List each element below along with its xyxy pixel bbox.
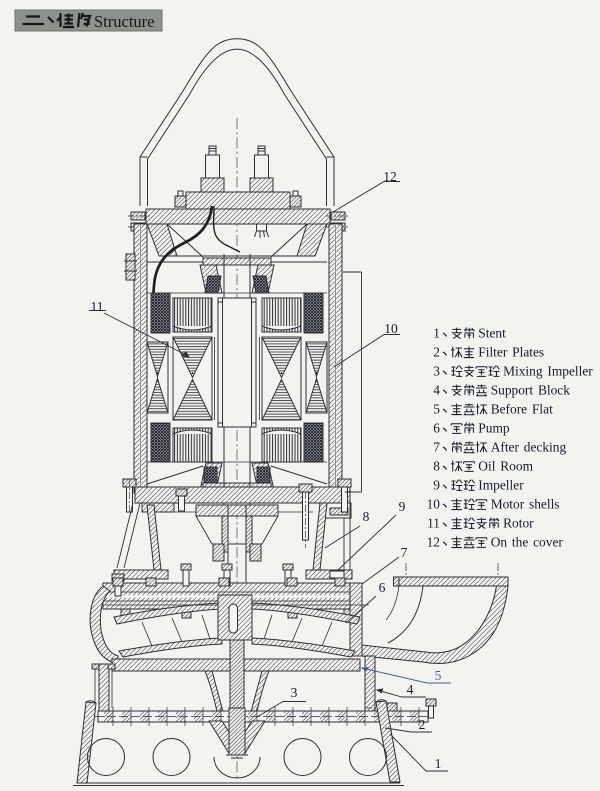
svg-text:12: 12 [383, 169, 397, 184]
svg-text:8: 8 [363, 509, 370, 524]
svg-text:7: 7 [433, 440, 440, 455]
svg-text:11: 11 [91, 299, 104, 314]
svg-text:6: 6 [379, 580, 386, 595]
svg-text:6: 6 [433, 421, 440, 436]
svg-text:Pump: Pump [478, 421, 510, 436]
svg-text:Impeller: Impeller [478, 478, 524, 493]
svg-text:5: 5 [435, 668, 442, 683]
svg-text:4: 4 [433, 383, 440, 398]
svg-text:1: 1 [433, 326, 440, 341]
svg-text:Before Flat: Before Flat [491, 402, 553, 417]
svg-text:On the cover: On the cover [491, 535, 564, 550]
svg-text:3: 3 [433, 364, 440, 379]
svg-text:5: 5 [433, 402, 440, 417]
svg-text:11: 11 [427, 516, 440, 531]
svg-text:Stent: Stent [478, 326, 506, 341]
svg-text:7: 7 [401, 545, 408, 560]
svg-text:10: 10 [427, 497, 441, 512]
svg-text:Motor shells: Motor shells [491, 497, 560, 512]
svg-text:After decking: After decking [491, 440, 567, 455]
svg-text:Filter Plates: Filter Plates [478, 345, 544, 360]
svg-text:Structure: Structure [94, 12, 154, 31]
svg-text:8: 8 [433, 459, 440, 474]
svg-text:Support Block: Support Block [491, 383, 571, 398]
svg-text:4: 4 [407, 682, 414, 697]
svg-text:9: 9 [399, 499, 406, 514]
svg-text:3: 3 [291, 685, 298, 700]
svg-text:1: 1 [435, 756, 442, 771]
svg-text:2: 2 [419, 717, 426, 732]
svg-text:Mixing Impeller: Mixing Impeller [503, 364, 593, 379]
svg-text:12: 12 [427, 535, 440, 550]
svg-text:9: 9 [433, 478, 440, 493]
svg-text:Oil Room: Oil Room [478, 459, 533, 474]
svg-text:2: 2 [433, 345, 440, 360]
svg-text:Rotor: Rotor [503, 516, 534, 531]
svg-text:10: 10 [384, 321, 398, 336]
